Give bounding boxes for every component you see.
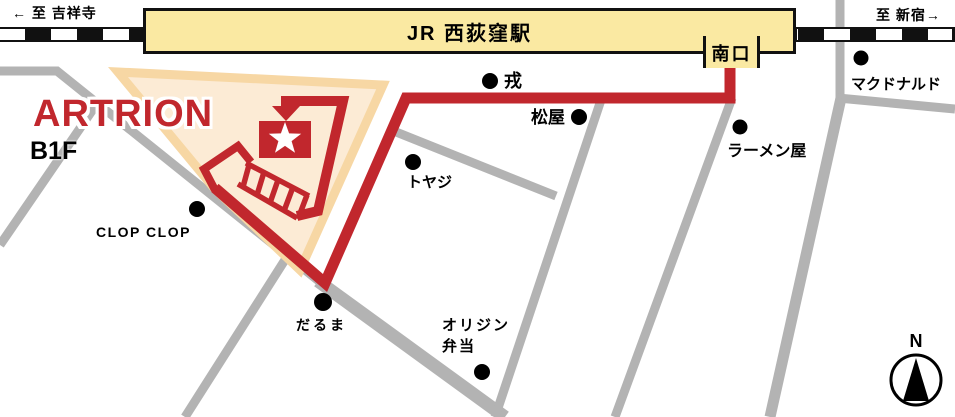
- poi-label-toyaji: トヤジ: [407, 174, 452, 191]
- direction-label-shinjuku: 至 新宿→: [876, 7, 941, 23]
- poi-dot-mcdonalds: [854, 51, 869, 66]
- poi-dot-daruma: [314, 293, 332, 311]
- poi-dot-origin-bento: [474, 364, 490, 380]
- poi-label-origin-bento-line1: オリジン: [442, 317, 510, 334]
- street-matsuya-south: [495, 100, 601, 417]
- venue-floor: B1F: [30, 137, 77, 166]
- south-exit-label: 南口: [712, 40, 752, 66]
- south-exit-box: 南口: [703, 36, 760, 68]
- access-map: ← 至 吉祥寺 至 新宿→ JR 西荻窪駅 南口 ARTRION B1F マクド…: [0, 0, 955, 417]
- railway-right: [796, 28, 955, 41]
- poi-label-mcdonalds: マクドナルド: [851, 76, 941, 93]
- poi-label-matsuya: 松屋: [531, 108, 565, 128]
- compass-icon: [891, 355, 941, 405]
- street-daruma-south: [185, 252, 290, 417]
- poi-label-daruma: だるま: [296, 317, 347, 333]
- poi-label-clop-clop: CLOP CLOP: [96, 224, 191, 240]
- street-east: [838, 98, 955, 109]
- venue-name: ARTRION: [33, 95, 213, 133]
- poi-label-ebisu: 戎: [504, 71, 522, 92]
- poi-dot-ramen-shop: [733, 120, 748, 135]
- station-name: JR 西荻窪駅: [407, 17, 532, 46]
- poi-dot-ebisu: [482, 73, 498, 89]
- station-box: JR 西荻窪駅: [143, 8, 796, 54]
- street-southexit-south: [615, 98, 732, 417]
- railway-left: [0, 28, 143, 41]
- compass-north-label: N: [903, 331, 929, 352]
- destination-star-marker: [259, 121, 311, 158]
- direction-label-kichijoji: ← 至 吉祥寺: [12, 5, 97, 21]
- poi-dot-toyaji: [405, 154, 421, 170]
- poi-dot-clop-clop: [189, 201, 205, 217]
- poi-label-ramen-shop: ラーメン屋: [727, 143, 806, 161]
- poi-dot-matsuya: [571, 109, 587, 125]
- poi-label-origin-bento-line2: 弁当: [442, 338, 510, 355]
- poi-label-origin-bento: オリジン 弁当: [442, 317, 510, 356]
